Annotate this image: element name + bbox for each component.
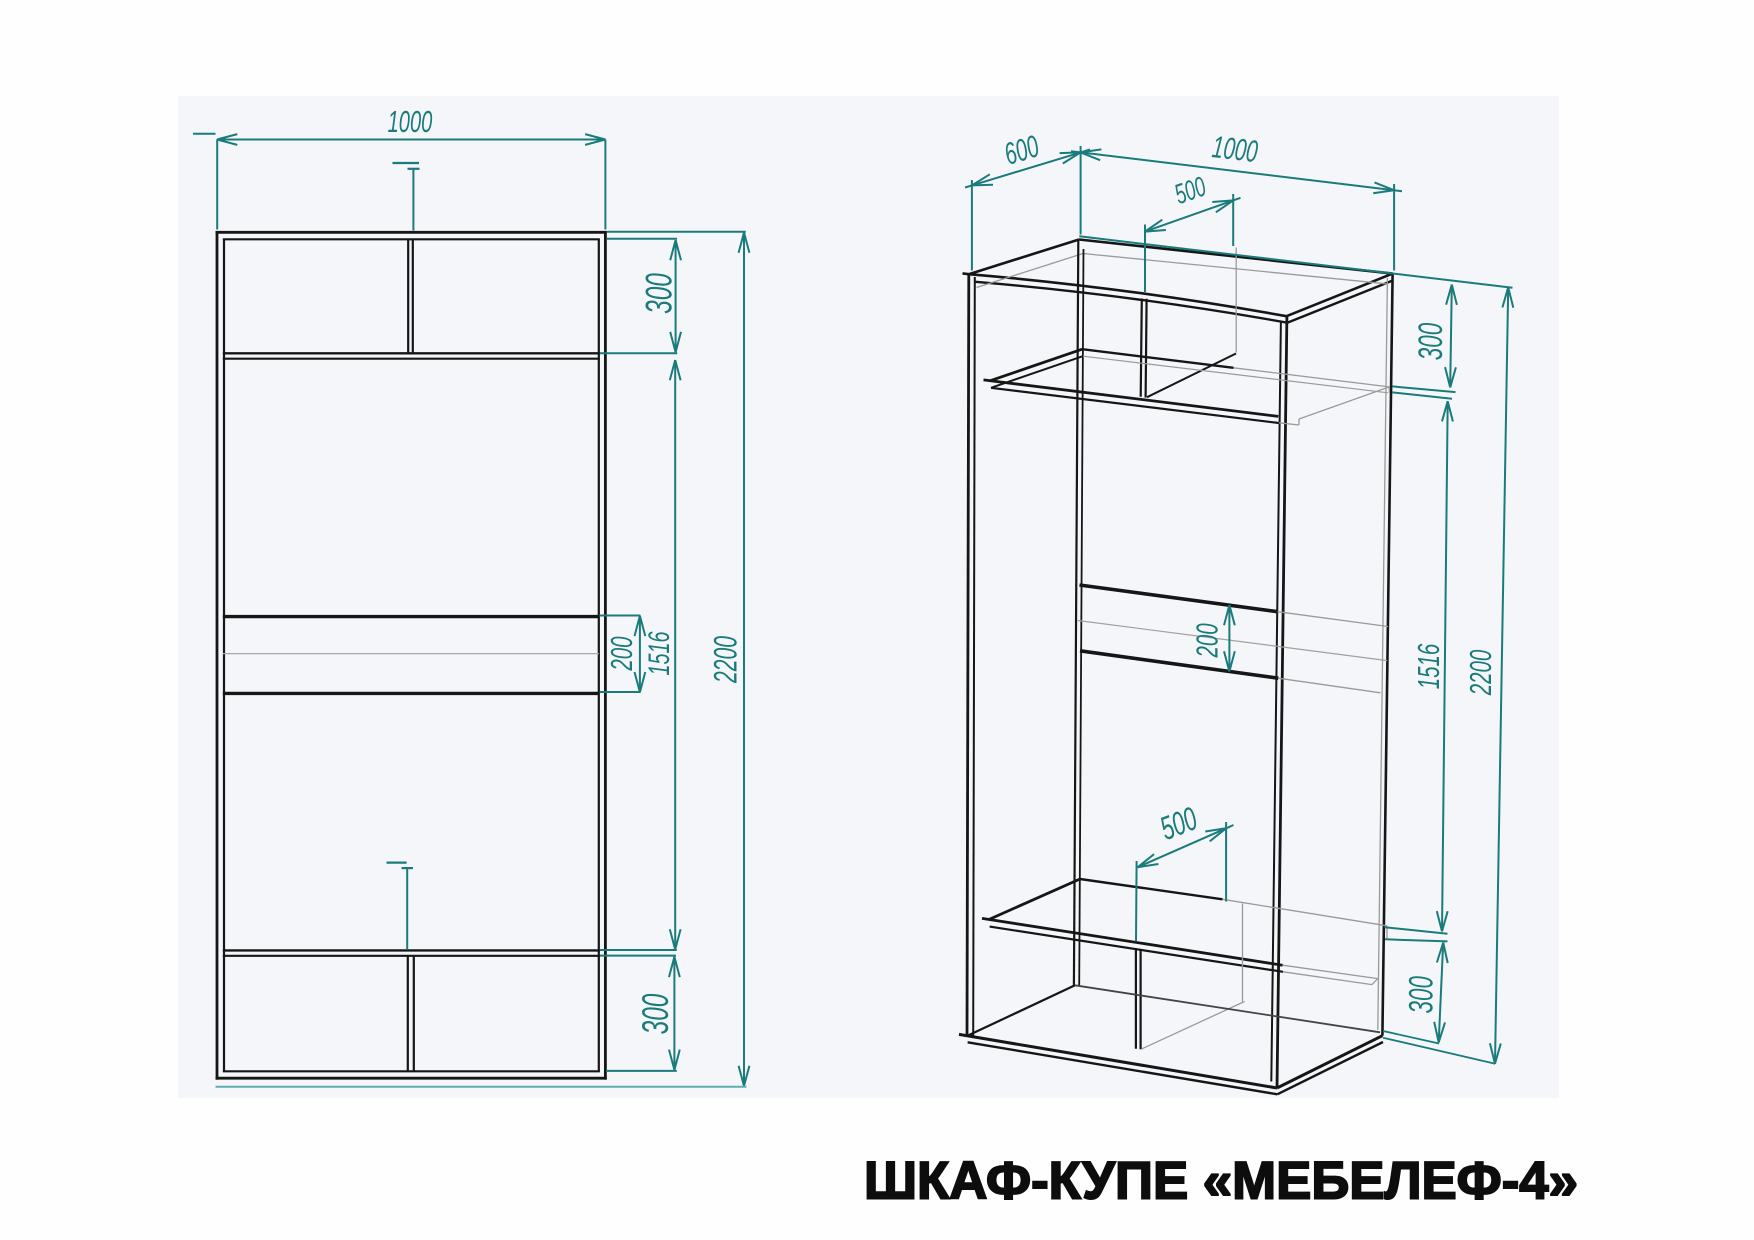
- svg-text:300: 300: [635, 993, 676, 1034]
- svg-text:200: 200: [1189, 623, 1224, 658]
- svg-text:ШКАФ-КУПЕ «МЕБЕЛЕФ-4»: ШКАФ-КУПЕ «МЕБЕЛЕФ-4»: [864, 1152, 1578, 1211]
- svg-text:200: 200: [604, 636, 639, 671]
- svg-text:1516: 1516: [643, 631, 676, 676]
- svg-text:2200: 2200: [1463, 649, 1498, 696]
- svg-text:300: 300: [1403, 976, 1441, 1013]
- svg-text:300: 300: [638, 273, 679, 314]
- svg-text:1516: 1516: [1411, 643, 1446, 689]
- svg-text:1000: 1000: [388, 106, 433, 139]
- svg-text:1000: 1000: [1210, 129, 1260, 170]
- svg-text:2200: 2200: [707, 636, 744, 684]
- svg-text:300: 300: [1413, 323, 1451, 360]
